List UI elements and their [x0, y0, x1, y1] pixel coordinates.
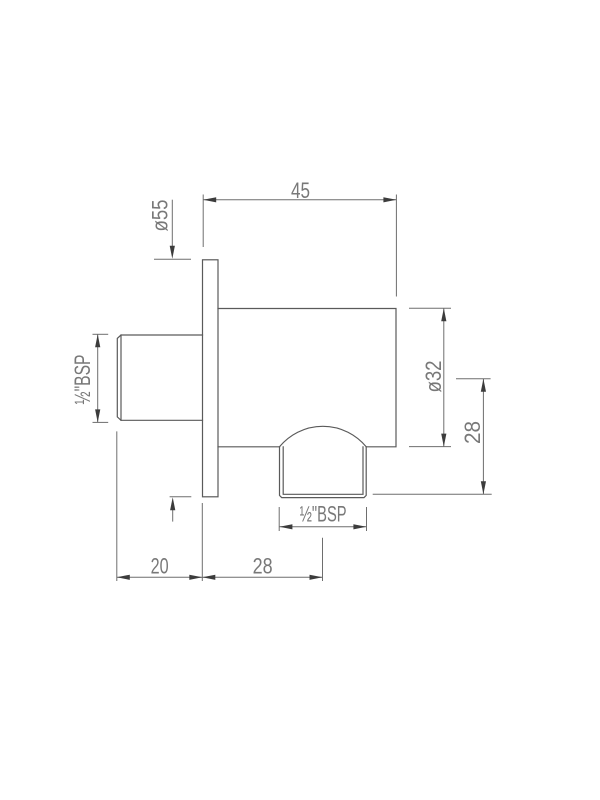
svg-text:28: 28 — [460, 421, 485, 444]
svg-text:½"BSP: ½"BSP — [70, 355, 95, 405]
svg-text:28: 28 — [253, 554, 273, 579]
svg-text:45: 45 — [291, 178, 310, 203]
svg-text:20: 20 — [151, 554, 169, 579]
svg-text:ø32: ø32 — [421, 361, 446, 393]
svg-text:½"BSP: ½"BSP — [300, 501, 347, 526]
svg-text:ø55: ø55 — [148, 200, 173, 232]
